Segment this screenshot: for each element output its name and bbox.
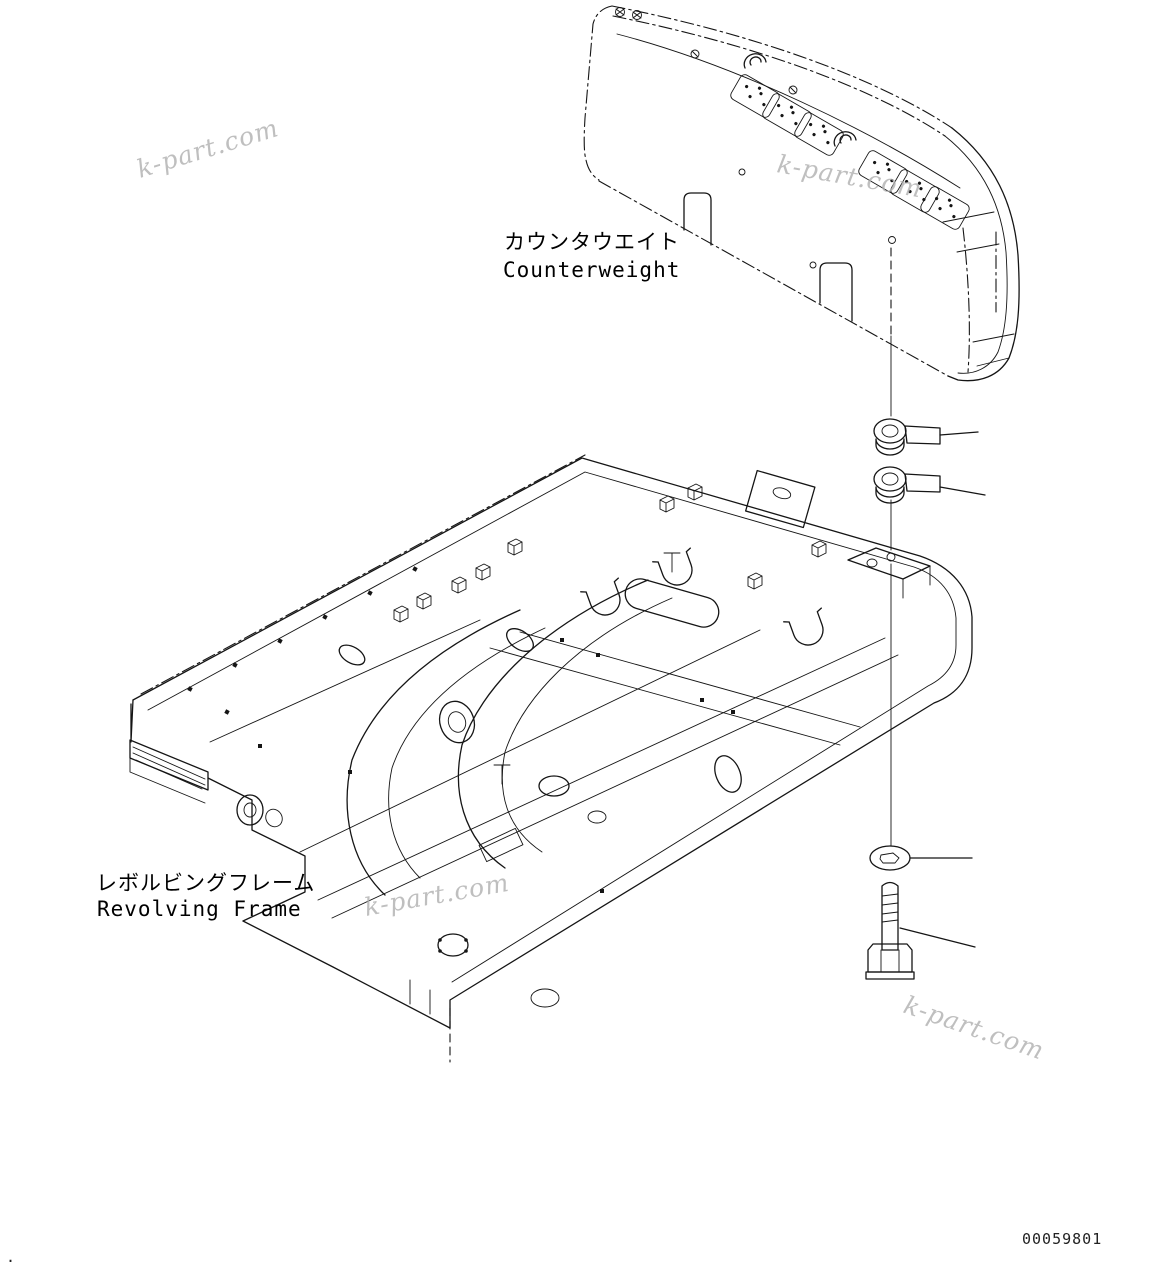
revolving-frame-label-en: Revolving Frame (97, 897, 302, 921)
flat-washer (870, 846, 972, 870)
drawing-number: 00059801 (1022, 1230, 1102, 1248)
eye-bolt-upper (874, 419, 978, 455)
counterweight-label-en: Counterweight (503, 258, 680, 282)
watermark-top-right: k-part.com (775, 149, 925, 203)
clip-blocks (394, 484, 826, 622)
revolving-frame-drawing (130, 455, 972, 1028)
counterweight-tread-plates (729, 73, 971, 231)
boom-bracket-rear (434, 580, 672, 868)
leader-line (900, 928, 975, 947)
deck-cutouts (438, 575, 746, 1007)
watermark-bottom-right: k-part.com (900, 990, 1048, 1065)
counterweight-label-jp: カウンタウエイト (504, 230, 680, 254)
leader-line (940, 432, 978, 435)
page-mark: . (6, 1248, 16, 1266)
leader-line (940, 487, 985, 495)
watermark-center: k-part.com (362, 868, 512, 922)
counterweight-drawing (584, 6, 1019, 381)
boom-bracket-front (237, 610, 545, 895)
rear-bracket (746, 471, 815, 528)
counterweight-mounting-notches (684, 193, 852, 321)
lifting-hook-icon (744, 54, 856, 146)
eye-bolt-lower (874, 467, 985, 503)
revolving-frame-label-jp: レボルビングフレーム (96, 871, 315, 895)
counterweight-screws (616, 8, 896, 269)
bolt-ticks (187, 566, 735, 893)
parts-diagram-page: k-part.com k-part.com k-part.com k-part.… (0, 0, 1163, 1273)
hex-bolt (866, 883, 975, 980)
parts-diagram: k-part.com k-part.com k-part.com k-part.… (0, 0, 1163, 1273)
pipe-saddles (581, 548, 832, 651)
watermark-top-left: k-part.com (133, 113, 282, 184)
watermarks: k-part.com k-part.com k-part.com k-part.… (133, 113, 1048, 1065)
